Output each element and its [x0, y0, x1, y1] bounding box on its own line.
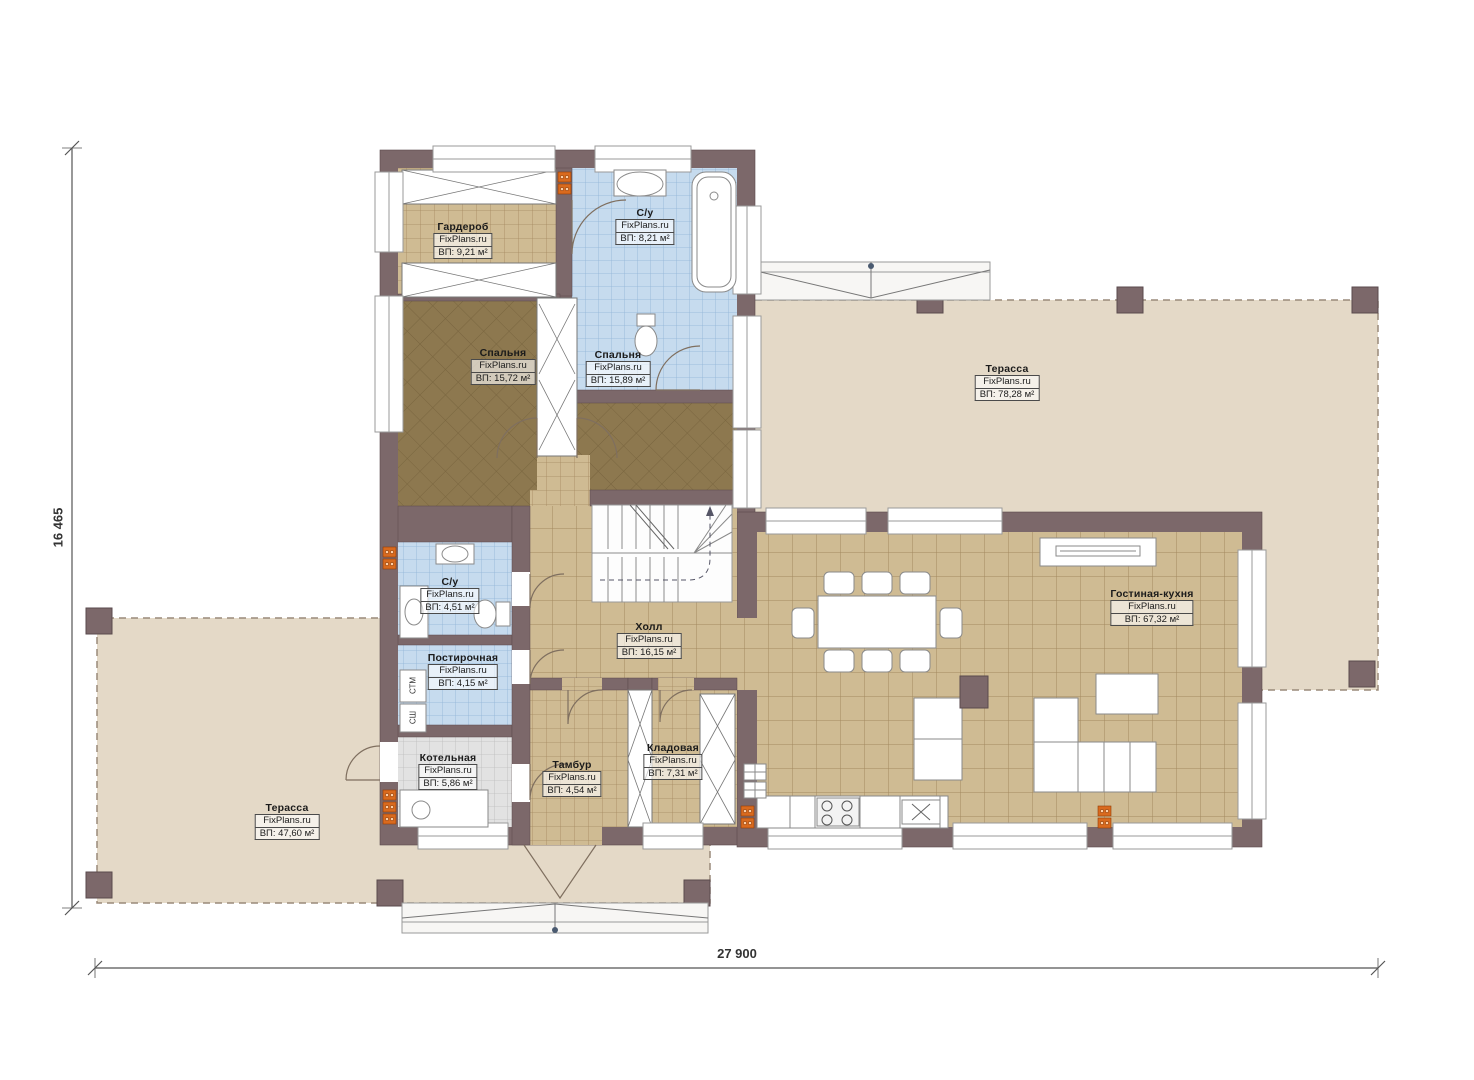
- room-area: ВП: 15,72 м²: [471, 373, 536, 386]
- room-name: Гостиная-кухня: [1110, 588, 1193, 600]
- room-label-wc-small: С/у FixPlans.ru ВП: 4,51 м²: [420, 576, 479, 614]
- boiler-equipment: [400, 790, 488, 827]
- terrace-column: [86, 608, 112, 634]
- dryer-label: СШ: [409, 708, 418, 728]
- room-name: Терасса: [255, 802, 320, 814]
- room-name: Спальня: [471, 347, 536, 359]
- room-label-laundry: Постирочная FixPlans.ru ВП: 4,15 м²: [428, 652, 498, 690]
- brand-label: FixPlans.ru: [471, 359, 536, 373]
- room-area: ВП: 47,60 м²: [255, 828, 320, 841]
- room-name: С/у: [420, 576, 479, 588]
- brand-label: FixPlans.ru: [617, 633, 682, 647]
- room-label-bathroom-top: С/у FixPlans.ru ВП: 8,21 м²: [615, 207, 674, 245]
- vent: [558, 172, 571, 182]
- dimension-height: 16 465: [51, 498, 66, 558]
- dimension-width: 27 900: [697, 946, 777, 961]
- brand-label: FixPlans.ru: [1110, 600, 1193, 614]
- washer-label: СТМ: [409, 676, 418, 696]
- floor-opening: [737, 618, 757, 690]
- room-label-hall: Холл FixPlans.ru ВП: 16,15 м²: [617, 621, 682, 659]
- room-area: ВП: 16,15 м²: [617, 647, 682, 660]
- brand-label: FixPlans.ru: [420, 588, 479, 602]
- dining-table: [818, 596, 936, 648]
- room-name: Постирочная: [428, 652, 498, 664]
- terrace-column: [1349, 661, 1375, 687]
- room-label-wardrobe: Гардероб FixPlans.ru ВП: 9,21 м²: [433, 221, 492, 259]
- floor-corridor: [530, 490, 592, 506]
- room-label-boiler: Котельная FixPlans.ru ВП: 5,86 м²: [418, 752, 477, 790]
- chair: [862, 650, 892, 672]
- floor-plan-canvas: [0, 0, 1474, 1080]
- chair: [900, 650, 930, 672]
- staircase: [592, 505, 732, 602]
- vent: [741, 818, 754, 828]
- porch-steps-bottom: [402, 903, 708, 933]
- brand-label: FixPlans.ru: [433, 233, 492, 247]
- terrace-column: [377, 880, 403, 906]
- chair: [824, 650, 854, 672]
- chair: [792, 608, 814, 638]
- coffee-table: [1096, 674, 1158, 714]
- bath-sink: [617, 172, 663, 196]
- toilet-tank: [637, 314, 655, 326]
- room-label-living-kitchen: Гостиная-кухня FixPlans.ru ВП: 67,32 м²: [1110, 588, 1193, 626]
- room-name: Кладовая: [643, 742, 702, 754]
- room-name: Холл: [617, 621, 682, 633]
- vent: [1098, 806, 1111, 816]
- brand-label: FixPlans.ru: [615, 219, 674, 233]
- brand-label: FixPlans.ru: [428, 664, 498, 678]
- sideboard: [1040, 538, 1156, 566]
- terrace-column: [1117, 287, 1143, 313]
- room-area: ВП: 4,15 м²: [428, 678, 498, 691]
- vent: [558, 184, 571, 194]
- vent: [741, 806, 754, 816]
- room-area: ВП: 67,32 м²: [1110, 614, 1193, 627]
- vent: [383, 802, 396, 812]
- room-name: С/у: [615, 207, 674, 219]
- chair: [862, 572, 892, 594]
- vent: [1098, 818, 1111, 828]
- floor-bedroom-2: [577, 403, 737, 490]
- chair: [824, 572, 854, 594]
- brand-label: FixPlans.ru: [418, 764, 477, 778]
- brand-label: FixPlans.ru: [255, 814, 320, 828]
- room-area: ВП: 5,86 м²: [418, 778, 477, 791]
- room-label-terrace-left: Терасса FixPlans.ru ВП: 47,60 м²: [255, 802, 320, 840]
- room-label-storage: Кладовая FixPlans.ru ВП: 7,31 м²: [643, 742, 702, 780]
- terrace-column: [684, 880, 710, 906]
- room-area: ВП: 78,28 м²: [975, 389, 1040, 402]
- floor-entrance-gap: [518, 827, 602, 845]
- room-name: Спальня: [586, 349, 651, 361]
- terrace-steps-top: [752, 262, 990, 300]
- room-name: Тамбур: [542, 759, 601, 771]
- vent: [383, 547, 396, 557]
- room-area: ВП: 7,31 м²: [643, 768, 702, 781]
- brand-label: FixPlans.ru: [643, 754, 702, 768]
- brand-label: FixPlans.ru: [975, 375, 1040, 389]
- room-name: Котельная: [418, 752, 477, 764]
- room-area: ВП: 4,54 м²: [542, 785, 601, 798]
- room-area: ВП: 8,21 м²: [615, 233, 674, 246]
- terrace-column: [1352, 287, 1378, 313]
- room-label-bedroom-1: Спальня FixPlans.ru ВП: 15,72 м²: [471, 347, 536, 385]
- vent: [383, 814, 396, 824]
- room-name: Терасса: [975, 363, 1040, 375]
- room-area: ВП: 4,51 м²: [420, 602, 479, 615]
- vent: [383, 790, 396, 800]
- wc-sink: [442, 546, 468, 562]
- room-name: Гардероб: [433, 221, 492, 233]
- terrace-column: [86, 872, 112, 898]
- column: [960, 676, 988, 708]
- vent: [383, 559, 396, 569]
- bathtub: [692, 172, 736, 292]
- floor-bedroom-1: [398, 301, 537, 506]
- brand-label: FixPlans.ru: [542, 771, 601, 785]
- chair: [900, 572, 930, 594]
- room-label-bedroom-2: Спальня FixPlans.ru ВП: 15,89 м²: [586, 349, 651, 387]
- room-label-tambour: Тамбур FixPlans.ru ВП: 4,54 м²: [542, 759, 601, 797]
- room-area: ВП: 15,89 м²: [586, 375, 651, 388]
- room-area: ВП: 9,21 м²: [433, 247, 492, 260]
- toilet-tank: [496, 602, 510, 626]
- chair: [940, 608, 962, 638]
- room-label-terrace-right: Терасса FixPlans.ru ВП: 78,28 м²: [975, 363, 1040, 401]
- brand-label: FixPlans.ru: [586, 361, 651, 375]
- floor-plan-page: Гардероб FixPlans.ru ВП: 9,21 м² С/у Fix…: [0, 0, 1474, 1080]
